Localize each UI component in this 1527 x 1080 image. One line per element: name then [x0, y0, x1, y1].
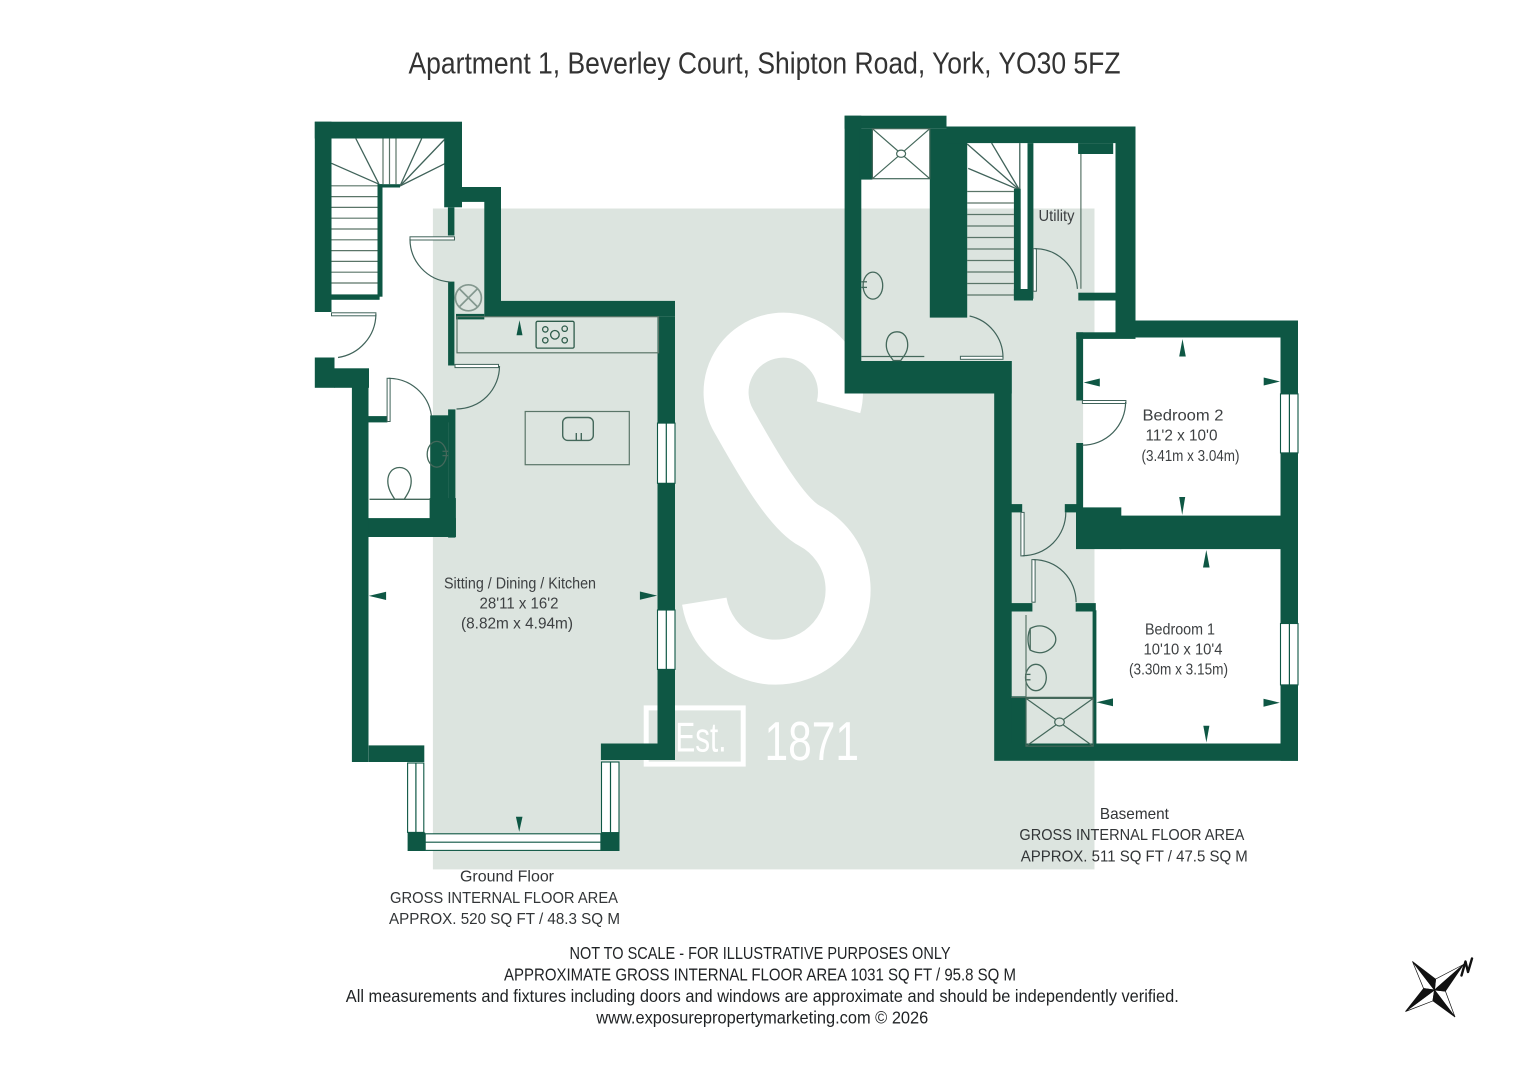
svg-text:Basement: Basement [1100, 806, 1170, 823]
svg-text:(3.30m x 3.15m): (3.30m x 3.15m) [1129, 662, 1228, 679]
svg-text:Apartment 1, Beverley Court, S: Apartment 1, Beverley Court, Shipton Roa… [409, 45, 1121, 80]
svg-text:1871: 1871 [765, 710, 860, 772]
svg-text:(8.82m x 4.94m): (8.82m x 4.94m) [461, 616, 573, 633]
svg-text:APPROX. 520 SQ FT / 48.3 SQ M: APPROX. 520 SQ FT / 48.3 SQ M [389, 911, 620, 928]
svg-text:Sitting / Dining / Kitchen: Sitting / Dining / Kitchen [444, 576, 596, 593]
svg-text:www.exposurepropertymarketing.: www.exposurepropertymarketing.com © 2026 [595, 1008, 928, 1028]
svg-text:APPROXIMATE GROSS INTERNAL FLO: APPROXIMATE GROSS INTERNAL FLOOR AREA 10… [504, 965, 1016, 985]
svg-text:GROSS INTERNAL FLOOR AREA: GROSS INTERNAL FLOOR AREA [390, 890, 618, 907]
svg-text:Est.: Est. [676, 713, 727, 760]
svg-text:Utility: Utility [1039, 208, 1075, 225]
svg-text:Bedroom 1: Bedroom 1 [1145, 621, 1215, 638]
svg-text:GROSS INTERNAL FLOOR AREA: GROSS INTERNAL FLOOR AREA [1019, 827, 1244, 844]
svg-text:28'11 x 16'2: 28'11 x 16'2 [480, 596, 559, 613]
svg-text:10'10 x 10'4: 10'10 x 10'4 [1144, 642, 1223, 659]
svg-text:APPROX. 511 SQ FT / 47.5 SQ M: APPROX. 511 SQ FT / 47.5 SQ M [1021, 849, 1248, 866]
svg-text:Bedroom 2: Bedroom 2 [1143, 407, 1224, 424]
svg-text:(3.41m x 3.04m): (3.41m x 3.04m) [1142, 448, 1240, 465]
svg-text:All measurements and fixtures: All measurements and fixtures including … [346, 986, 1179, 1006]
svg-text:11'2 x 10'0: 11'2 x 10'0 [1146, 428, 1218, 445]
svg-text:Ground Floor: Ground Floor [460, 869, 555, 886]
svg-text:NOT TO SCALE - FOR ILLUSTRATIV: NOT TO SCALE - FOR ILLUSTRATIVE PURPOSES… [570, 943, 951, 963]
